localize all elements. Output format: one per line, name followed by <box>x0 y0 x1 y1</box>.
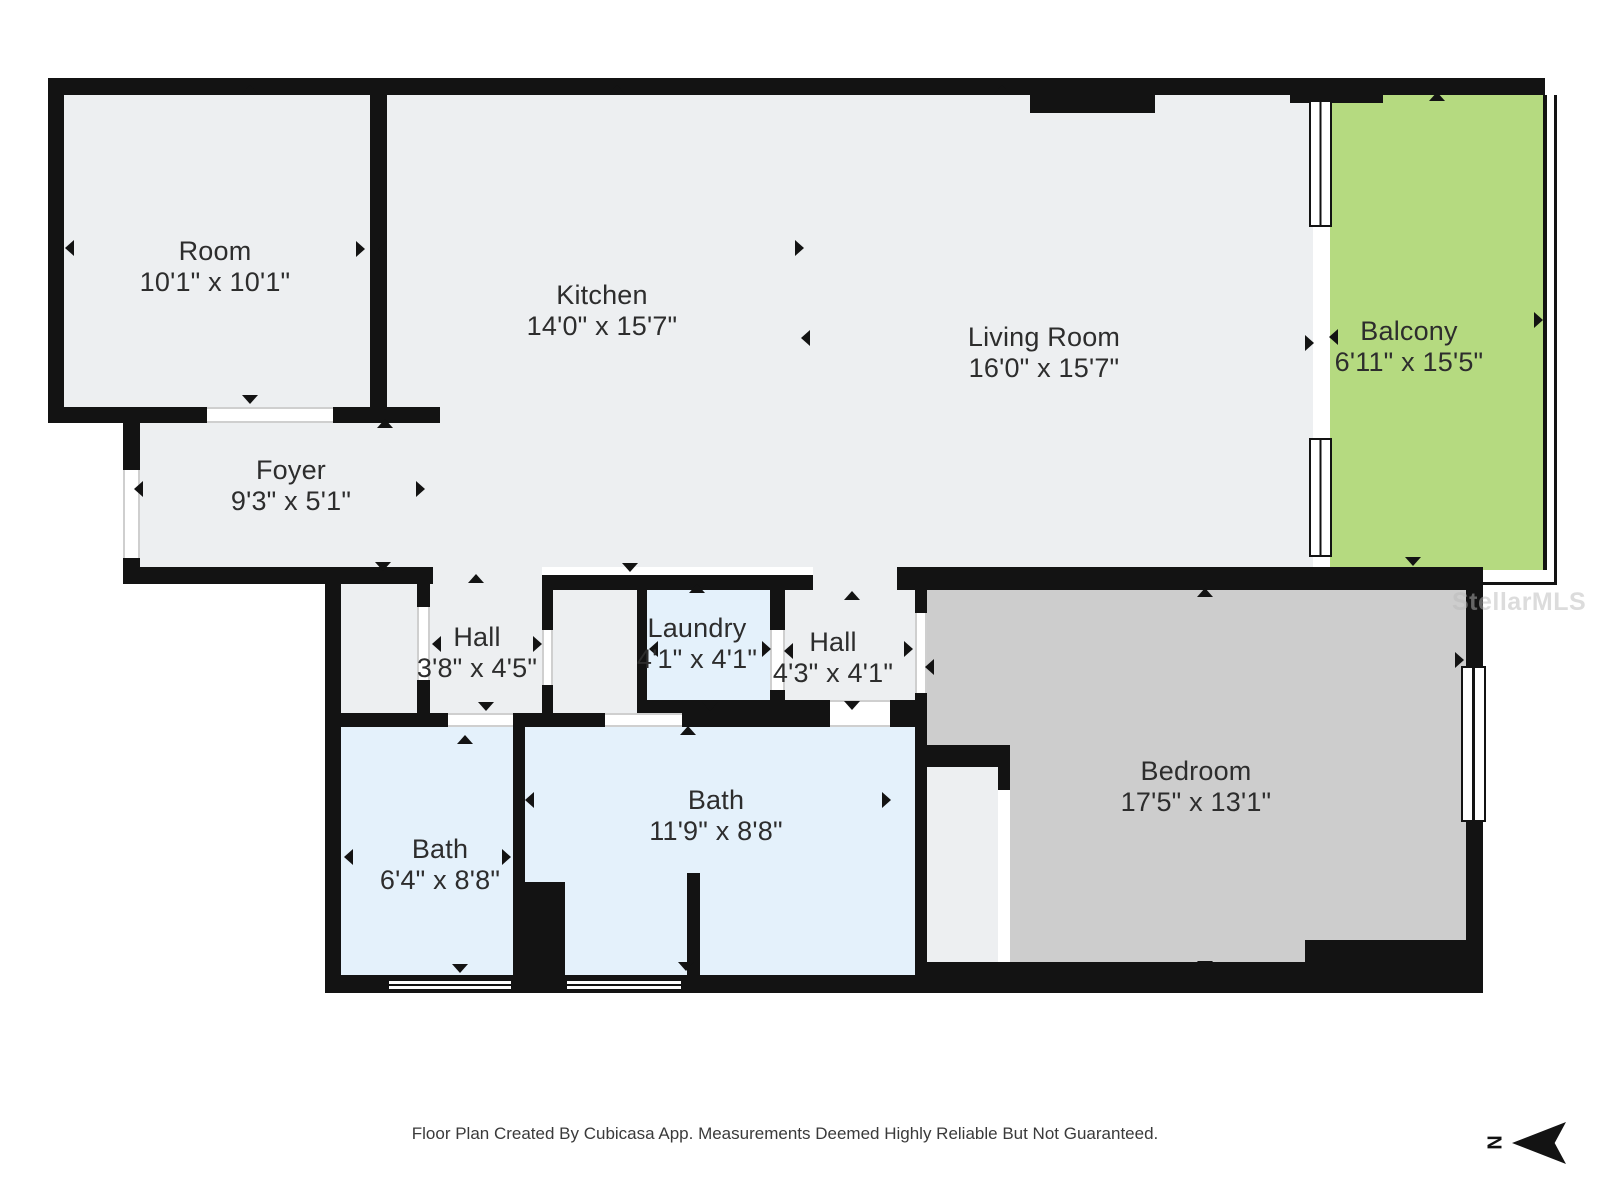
room-label-bath-1: Bath 6'4" x 8'8" <box>340 834 540 896</box>
passage-above-hall-2 <box>813 567 897 590</box>
door-direction-arrow <box>882 792 891 808</box>
door-direction-arrow <box>242 85 258 94</box>
room-dimensions: 4'3" x 4'1" <box>733 658 933 689</box>
wall <box>513 713 605 727</box>
door-direction-arrow <box>801 330 810 346</box>
room-name: Balcony <box>1259 316 1559 347</box>
door-direction-arrow <box>678 962 694 971</box>
wall <box>1305 940 1466 975</box>
wall <box>682 713 830 727</box>
door-opening <box>448 713 513 727</box>
window <box>1309 100 1332 227</box>
door-direction-arrow <box>844 701 860 710</box>
wall <box>48 78 1545 95</box>
door-opening <box>207 407 333 423</box>
wall <box>325 584 341 993</box>
door-direction-arrow <box>1197 961 1213 970</box>
room-name: Bedroom <box>1046 756 1346 787</box>
footer-disclaimer: Floor Plan Created By Cubicasa App. Meas… <box>0 1124 1570 1144</box>
room-label-living-room: Living Room 16'0" x 15'7" <box>894 322 1194 384</box>
closet-floor-bedroom <box>927 767 998 973</box>
door-direction-arrow <box>844 591 860 600</box>
door-direction-arrow <box>609 85 625 94</box>
door-direction-arrow <box>452 964 468 973</box>
wall <box>897 567 1483 590</box>
door-direction-arrow <box>468 574 484 583</box>
door-direction-arrow <box>1197 588 1213 597</box>
wall <box>1030 95 1155 113</box>
wall <box>998 973 1010 993</box>
room-dimensions: 14'0" x 15'7" <box>452 311 752 342</box>
wall <box>915 693 927 993</box>
window <box>1461 666 1486 822</box>
door-direction-arrow <box>622 563 638 572</box>
room-dimensions: 16'0" x 15'7" <box>894 353 1194 384</box>
door-direction-arrow <box>242 395 258 404</box>
wall <box>417 680 430 713</box>
room-label-balcony: Balcony 6'11" x 15'5" <box>1259 316 1559 378</box>
door-direction-arrow <box>795 240 804 256</box>
wall <box>123 423 140 470</box>
room-name: Kitchen <box>452 280 752 311</box>
room-dimensions: 6'4" x 8'8" <box>340 865 540 896</box>
room-label-bedroom: Bedroom 17'5" x 13'1" <box>1046 756 1346 818</box>
room-label-hall-1: Hall 3'8" x 4'5" <box>377 622 577 684</box>
room-dimensions: 9'3" x 5'1" <box>141 486 441 517</box>
door-direction-arrow <box>375 562 391 571</box>
room-name: Foyer <box>141 455 441 486</box>
room-name: Bath <box>340 834 540 865</box>
room-dimensions: 3'8" x 4'5" <box>377 653 577 684</box>
door-direction-arrow <box>377 419 393 428</box>
door-direction-arrow <box>478 702 494 711</box>
room-name: Hall <box>377 622 577 653</box>
door-opening <box>605 713 682 727</box>
door-direction-arrow <box>702 702 718 711</box>
wall <box>48 95 64 423</box>
wall <box>542 685 553 713</box>
wall <box>687 873 700 975</box>
door-direction-arrow <box>378 241 387 257</box>
door-direction-arrow <box>994 85 1010 94</box>
stellar-mls-watermark: StellarMLS <box>1452 588 1586 617</box>
room-name: Bath <box>616 785 816 816</box>
room-label-kitchen: Kitchen 14'0" x 15'7" <box>452 280 752 342</box>
balcony-outer-line <box>1466 582 1557 585</box>
wall <box>325 713 448 727</box>
room-floor-bath-2 <box>525 727 915 975</box>
door-opening <box>830 700 890 727</box>
window <box>387 979 513 991</box>
room-label-hall-2: Hall 4'3" x 4'1" <box>733 627 933 689</box>
floor-plan: Room 10'1" x 10'1" Kitchen 14'0" x 15'7"… <box>0 0 1600 1200</box>
window <box>1309 438 1332 557</box>
wall <box>417 584 430 607</box>
wall <box>998 767 1010 790</box>
door-direction-arrow <box>1429 92 1445 101</box>
room-dimensions: 17'5" x 13'1" <box>1046 787 1346 818</box>
room-dimensions: 10'1" x 10'1" <box>65 267 365 298</box>
room-name: Hall <box>733 627 933 658</box>
room-dimensions: 6'11" x 15'5" <box>1259 347 1559 378</box>
wall <box>48 407 207 423</box>
room-label-room: Room 10'1" x 10'1" <box>65 236 365 298</box>
door-direction-arrow <box>457 735 473 744</box>
wall <box>915 590 927 613</box>
door-direction-arrow <box>525 792 534 808</box>
room-label-foyer: Foyer 9'3" x 5'1" <box>141 455 441 517</box>
window <box>565 979 683 991</box>
door-direction-arrow <box>1405 557 1421 566</box>
door-direction-arrow <box>680 726 696 735</box>
door-direction-arrow <box>1455 652 1464 668</box>
room-label-bath-2: Bath 11'9" x 8'8" <box>616 785 816 847</box>
wall <box>890 700 915 727</box>
wall <box>370 95 387 423</box>
wall <box>927 745 1010 767</box>
wall <box>1290 95 1383 103</box>
door-direction-arrow <box>689 584 705 593</box>
room-dimensions: 11'9" x 8'8" <box>616 816 816 847</box>
closet-opening-strip <box>998 767 1010 973</box>
room-name: Living Room <box>894 322 1194 353</box>
room-name: Room <box>65 236 365 267</box>
